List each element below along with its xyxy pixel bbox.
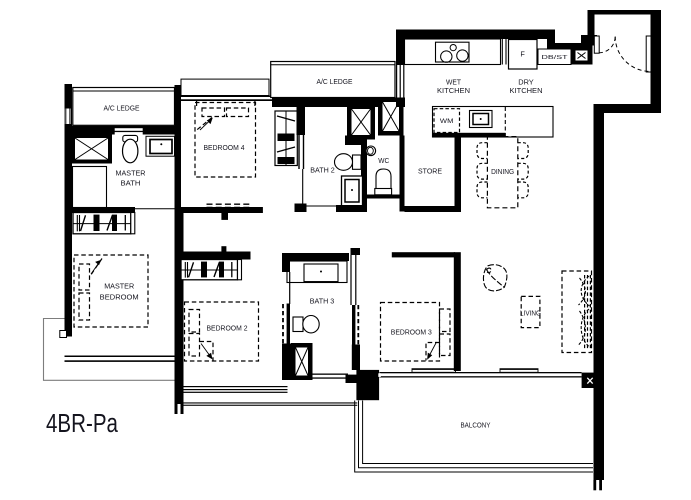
svg-text:BATH: BATH xyxy=(121,179,141,188)
svg-text:4BR-Pa: 4BR-Pa xyxy=(46,410,119,438)
svg-text:MASTER: MASTER xyxy=(116,169,146,178)
svg-text:WM: WM xyxy=(440,118,454,125)
svg-text:BATH 3: BATH 3 xyxy=(310,296,335,305)
svg-text:A/C LEDGE: A/C LEDGE xyxy=(104,104,140,113)
svg-text:DRY: DRY xyxy=(518,77,534,86)
svg-text:A/C LEDGE: A/C LEDGE xyxy=(317,77,353,86)
svg-text:BEDROOM 2: BEDROOM 2 xyxy=(207,324,248,333)
svg-text:F: F xyxy=(520,50,525,59)
svg-text:MASTER: MASTER xyxy=(104,282,134,291)
svg-text:KITCHEN: KITCHEN xyxy=(437,86,470,95)
svg-text:WET: WET xyxy=(446,77,461,86)
svg-text:LIVING: LIVING xyxy=(520,308,541,317)
svg-text:BEDROOM 4: BEDROOM 4 xyxy=(204,143,245,152)
svg-text:KITCHEN: KITCHEN xyxy=(510,86,543,95)
svg-text:BEDROOM 3: BEDROOM 3 xyxy=(391,328,432,337)
svg-text:BATH 2: BATH 2 xyxy=(310,165,335,174)
svg-text:WC: WC xyxy=(378,156,389,165)
svg-text:DB/ST: DB/ST xyxy=(542,55,569,61)
svg-text:BALCONY: BALCONY xyxy=(461,421,491,430)
svg-text:DINING: DINING xyxy=(491,167,514,176)
svg-text:STORE: STORE xyxy=(418,167,442,176)
svg-text:BEDROOM: BEDROOM xyxy=(100,292,139,301)
